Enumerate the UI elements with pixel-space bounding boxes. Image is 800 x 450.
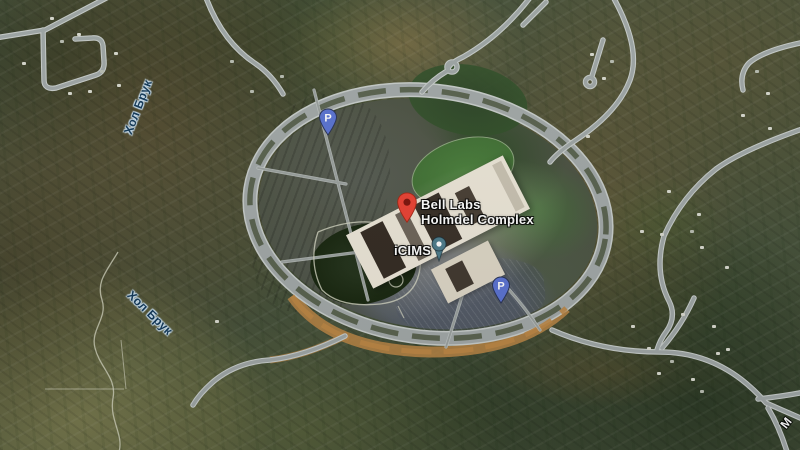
icims-pin-icon[interactable]	[431, 236, 447, 267]
poi-label-bell-labs[interactable]: Bell Labs Holmdel Complex	[421, 197, 534, 227]
map-canvas[interactable]: Хол Брук Хол Брук M P P iCIMS Bell Labs …	[0, 0, 800, 450]
poi-label-icims[interactable]: iCIMS	[394, 243, 431, 258]
parking-glyph: P	[497, 281, 504, 293]
poi-label-line1: Bell Labs	[421, 197, 534, 212]
parking-pin-icon[interactable]: P	[491, 276, 511, 309]
roof-patch	[445, 260, 474, 292]
house-rooftops	[0, 0, 4, 3]
place-pin-icon[interactable]	[396, 192, 418, 229]
poi-label-line2: Holmdel Complex	[421, 212, 534, 227]
parking-glyph: P	[324, 113, 331, 125]
parking-pin-icon[interactable]: P	[318, 108, 338, 141]
